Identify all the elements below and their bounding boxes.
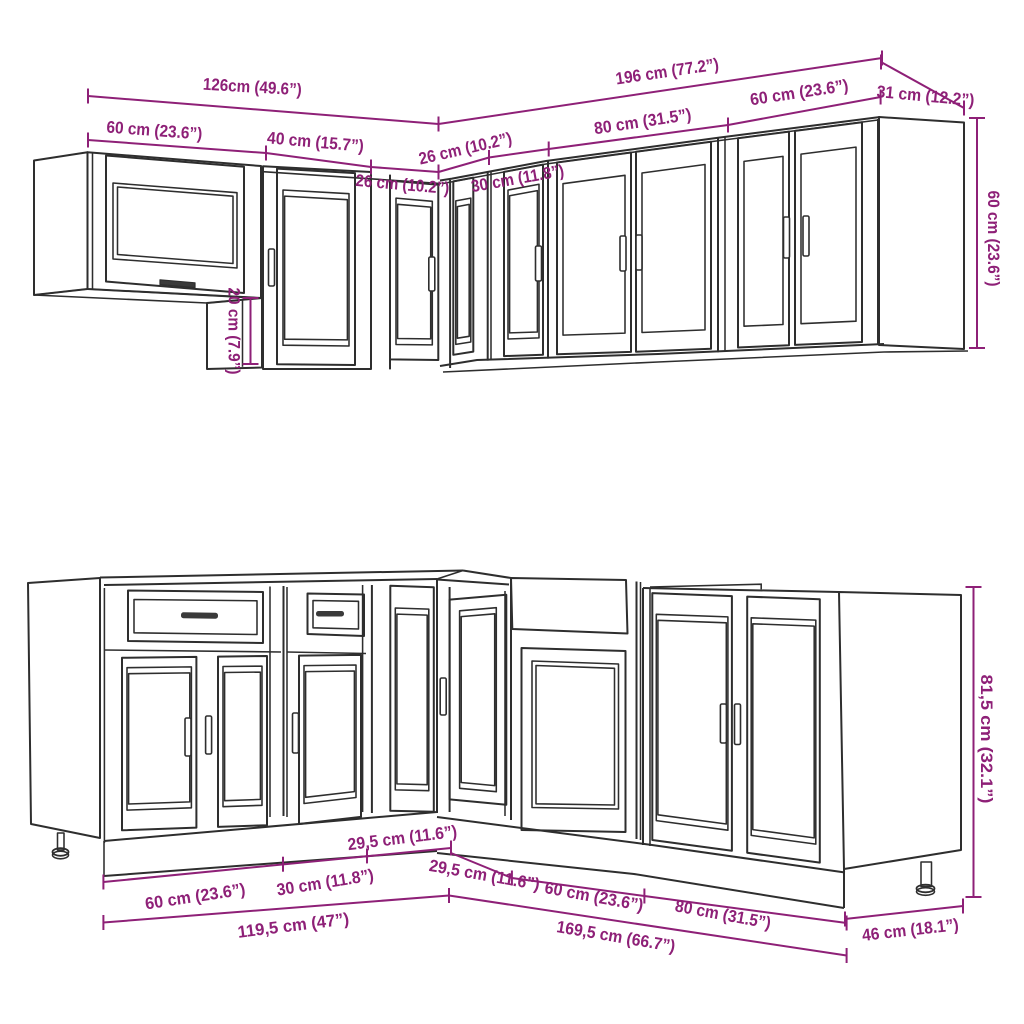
svg-text:126cm (49.6”): 126cm (49.6”) [202,75,302,100]
svg-text:60 cm (23.6”): 60 cm (23.6”) [106,118,203,144]
svg-text:60 cm (23.6”): 60 cm (23.6”) [144,880,247,914]
svg-text:60 cm (23.6”): 60 cm (23.6”) [749,76,850,109]
svg-text:60 cm (23.6”): 60 cm (23.6”) [984,191,1003,287]
svg-text:169,5 cm (66.7”): 169,5 cm (66.7”) [555,917,676,956]
svg-text:81,5 cm (32.1”): 81,5 cm (32.1”) [977,675,996,804]
svg-text:80 cm (31.5”): 80 cm (31.5”) [674,896,773,932]
svg-text:40 cm (15.7”): 40 cm (15.7”) [266,128,364,155]
svg-text:119,5 cm (47”): 119,5 cm (47”) [237,909,350,942]
svg-text:60 cm (23.6”): 60 cm (23.6”) [543,878,645,915]
svg-text:46 cm (18.1”): 46 cm (18.1”) [861,915,960,945]
svg-text:26 cm (10.2”): 26 cm (10.2”) [355,171,450,198]
svg-text:26 cm (10.2”): 26 cm (10.2”) [417,129,514,169]
svg-text:30 cm (11.8”): 30 cm (11.8”) [275,866,375,900]
svg-text:20 cm (7.9”): 20 cm (7.9”) [225,288,244,375]
svg-text:196 cm (77.2”): 196 cm (77.2”) [614,55,720,89]
svg-text:31 cm (12.2”): 31 cm (12.2”) [876,82,975,110]
svg-text:80 cm (31.5”): 80 cm (31.5”) [593,105,693,138]
